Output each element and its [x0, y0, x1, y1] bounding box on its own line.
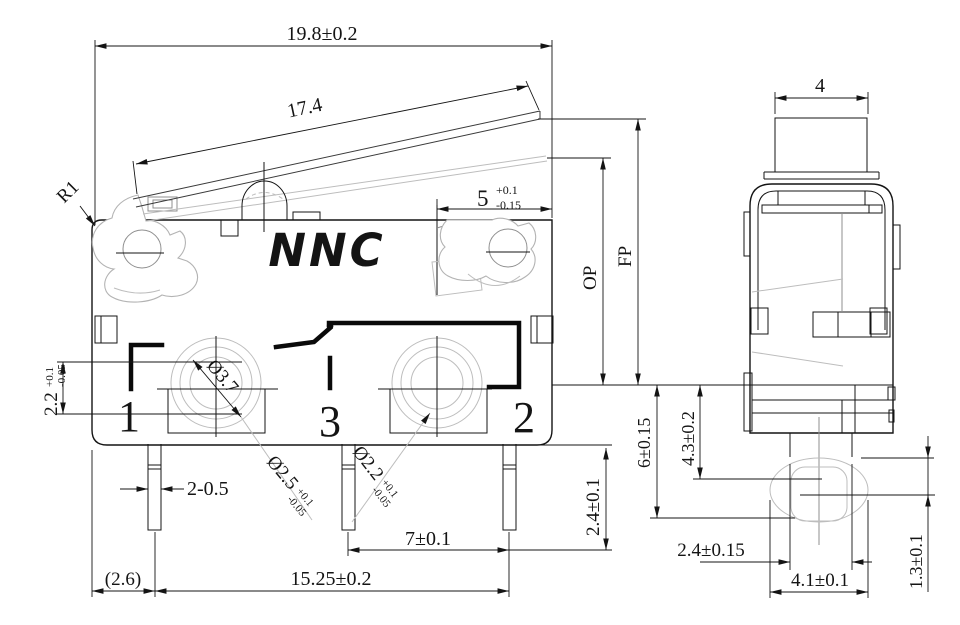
dim-5-base: 5 [477, 186, 489, 211]
front-dimensions: 19.8±0.2 17.4 R1 5 +0.1 -0.15 OP [41, 23, 893, 597]
dim-edge-offset-text: (2.6) [105, 569, 141, 590]
dim-pin2-diameter: Ø2.2 +0.1 -0.05 [343, 413, 430, 522]
dim-lever-free-end: 5 +0.1 -0.15 [437, 183, 552, 222]
dim-button-width-text: 4 [815, 75, 825, 97]
dim-pin1-diameter: Ø2.5 +0.1 -0.05 [258, 452, 321, 519]
terminal-label-2: 2 [513, 393, 535, 442]
dim-lever-length-text: 17.4 [285, 94, 324, 123]
side-button-flange [764, 172, 879, 179]
terminal-label-1: 1 [118, 392, 140, 441]
dim-lever-length: 17.4 [133, 81, 539, 194]
dim-corner-radius: R1 [53, 177, 95, 226]
pin-1 [148, 444, 161, 530]
dim-corner-radius-text: R1 [53, 177, 84, 208]
side-neck [790, 433, 852, 457]
dim-pin-width-text: 2-0.5 [187, 478, 229, 500]
dim-tip-height: 1.3±0.1 [800, 436, 935, 592]
dim-op-text: OP [580, 266, 601, 290]
side-view [744, 118, 900, 545]
dim-dia-2-5-base: Ø2.5 [262, 452, 302, 494]
side-cells [813, 312, 890, 337]
dim-body-height-text: 4.3±0.2 [678, 411, 698, 466]
front-view: NNC 1 3 2 [92, 111, 553, 530]
terminal-label-3: 3 [319, 397, 341, 446]
dim-pin-pitch-text: 7±0.1 [405, 528, 451, 550]
dim-fp-text: FP [615, 246, 636, 267]
dim-5-tol-plus: +0.1 [496, 183, 518, 197]
dim-2-2-tol-minus: -0.05 [56, 364, 68, 387]
dim-total-height: 6±0.15 [634, 385, 795, 518]
dim-operating-position: OP [547, 158, 611, 385]
side-guides [778, 191, 869, 213]
side-facets [752, 279, 843, 366]
side-lower-lines [752, 385, 893, 433]
dim-5-tol-minus: -0.15 [496, 198, 521, 212]
pivot-bracket [92, 195, 197, 302]
dim-2-2-base: 2.2 [41, 392, 62, 416]
top-slot [221, 220, 238, 236]
top-plateau [293, 212, 320, 220]
dim-pin-span-text: 15.25±0.2 [291, 568, 372, 590]
mount-hole-right [531, 316, 553, 343]
side-comb-1 [888, 387, 895, 400]
dim-pin-length-text: 2.4±0.1 [583, 478, 604, 536]
dim-total-height-text: 6±0.15 [634, 418, 654, 468]
rivet-terminal-2 [378, 336, 492, 437]
dim-neck-width-text: 2.4±0.15 [677, 540, 744, 561]
side-cell-dividers [838, 312, 871, 337]
dim-pin-width: 2-0.5 [120, 478, 229, 500]
dim-overall-width-text: 19.8±0.2 [287, 23, 358, 45]
side-lever-wrap [758, 191, 885, 330]
side-button [775, 118, 867, 172]
dim-tip-height-text: 1.3±0.1 [906, 534, 926, 589]
dim-pin-length: 2.4±0.1 [509, 445, 612, 550]
dim-button-width: 4 [775, 75, 868, 114]
dim-boss-width-text: 4.1±0.1 [791, 570, 849, 591]
side-tab-upper-left [744, 212, 750, 256]
side-top-band [762, 205, 882, 213]
brand-logo: NNC [268, 224, 385, 277]
side-tab-upper-right [893, 225, 900, 269]
mount-hole-left [95, 316, 117, 343]
side-tab-lower-left [744, 373, 752, 431]
side-wrap-foot-left [751, 308, 768, 334]
right-clamp [439, 218, 536, 282]
dim-free-position: FP [538, 119, 646, 385]
microswitch-technical-drawing: NNC 1 3 2 19.8±0.2 17.4 R1 5 +0.1 -0.1 [0, 0, 960, 625]
drawing-canvas: NNC 1 3 2 19.8±0.2 17.4 R1 5 +0.1 -0.1 [0, 0, 960, 625]
pin-2 [503, 444, 516, 530]
dim-dia-2-2-base: Ø2.2 [348, 442, 388, 484]
dim-2-2-tol-plus: +0.1 [44, 367, 56, 387]
